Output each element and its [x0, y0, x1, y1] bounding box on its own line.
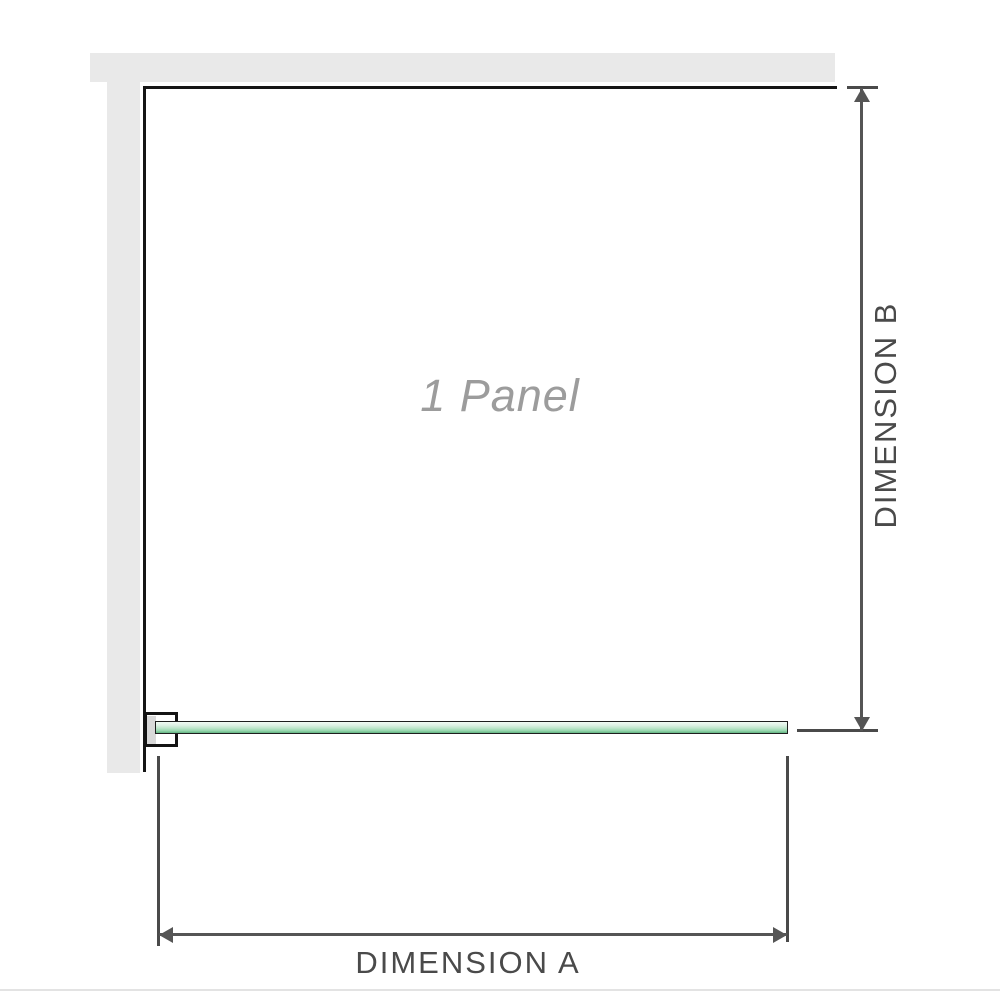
bottom-divider [0, 989, 1000, 991]
dimension-a-tick-left [157, 756, 160, 946]
dimension-a-tick-right [786, 756, 789, 942]
wall-top-strip [90, 53, 835, 82]
dimension-b-line [860, 88, 863, 731]
arrow-down-icon [854, 717, 870, 731]
glass-panel [155, 721, 788, 734]
frame-top-border [143, 86, 837, 89]
dimension-b-label: DIMENSION B [866, 265, 906, 565]
shower-panel-diagram: 1 Panel DIMENSION B DIMENSION A [0, 0, 1000, 1000]
arrow-left-icon [159, 927, 173, 943]
frame-left-border [143, 86, 146, 772]
arrow-up-icon [854, 88, 870, 102]
dimension-a-label: DIMENSION A [268, 945, 668, 981]
dimension-a-line [159, 933, 787, 936]
panel-count-label: 1 Panel [300, 370, 700, 422]
arrow-right-icon [773, 927, 787, 943]
wall-left-strip [107, 53, 140, 773]
